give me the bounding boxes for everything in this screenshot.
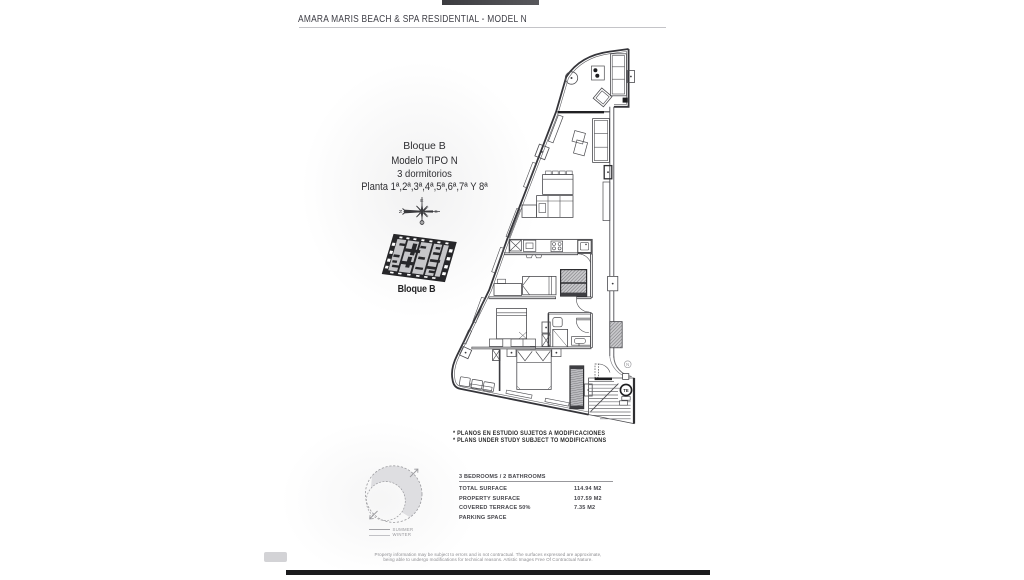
svg-text:TE: TE <box>623 388 629 393</box>
svg-text:N: N <box>626 362 629 367</box>
svg-text:E: E <box>420 198 423 204</box>
svg-text:N: N <box>398 209 404 213</box>
svg-text:S: S <box>434 209 437 215</box>
